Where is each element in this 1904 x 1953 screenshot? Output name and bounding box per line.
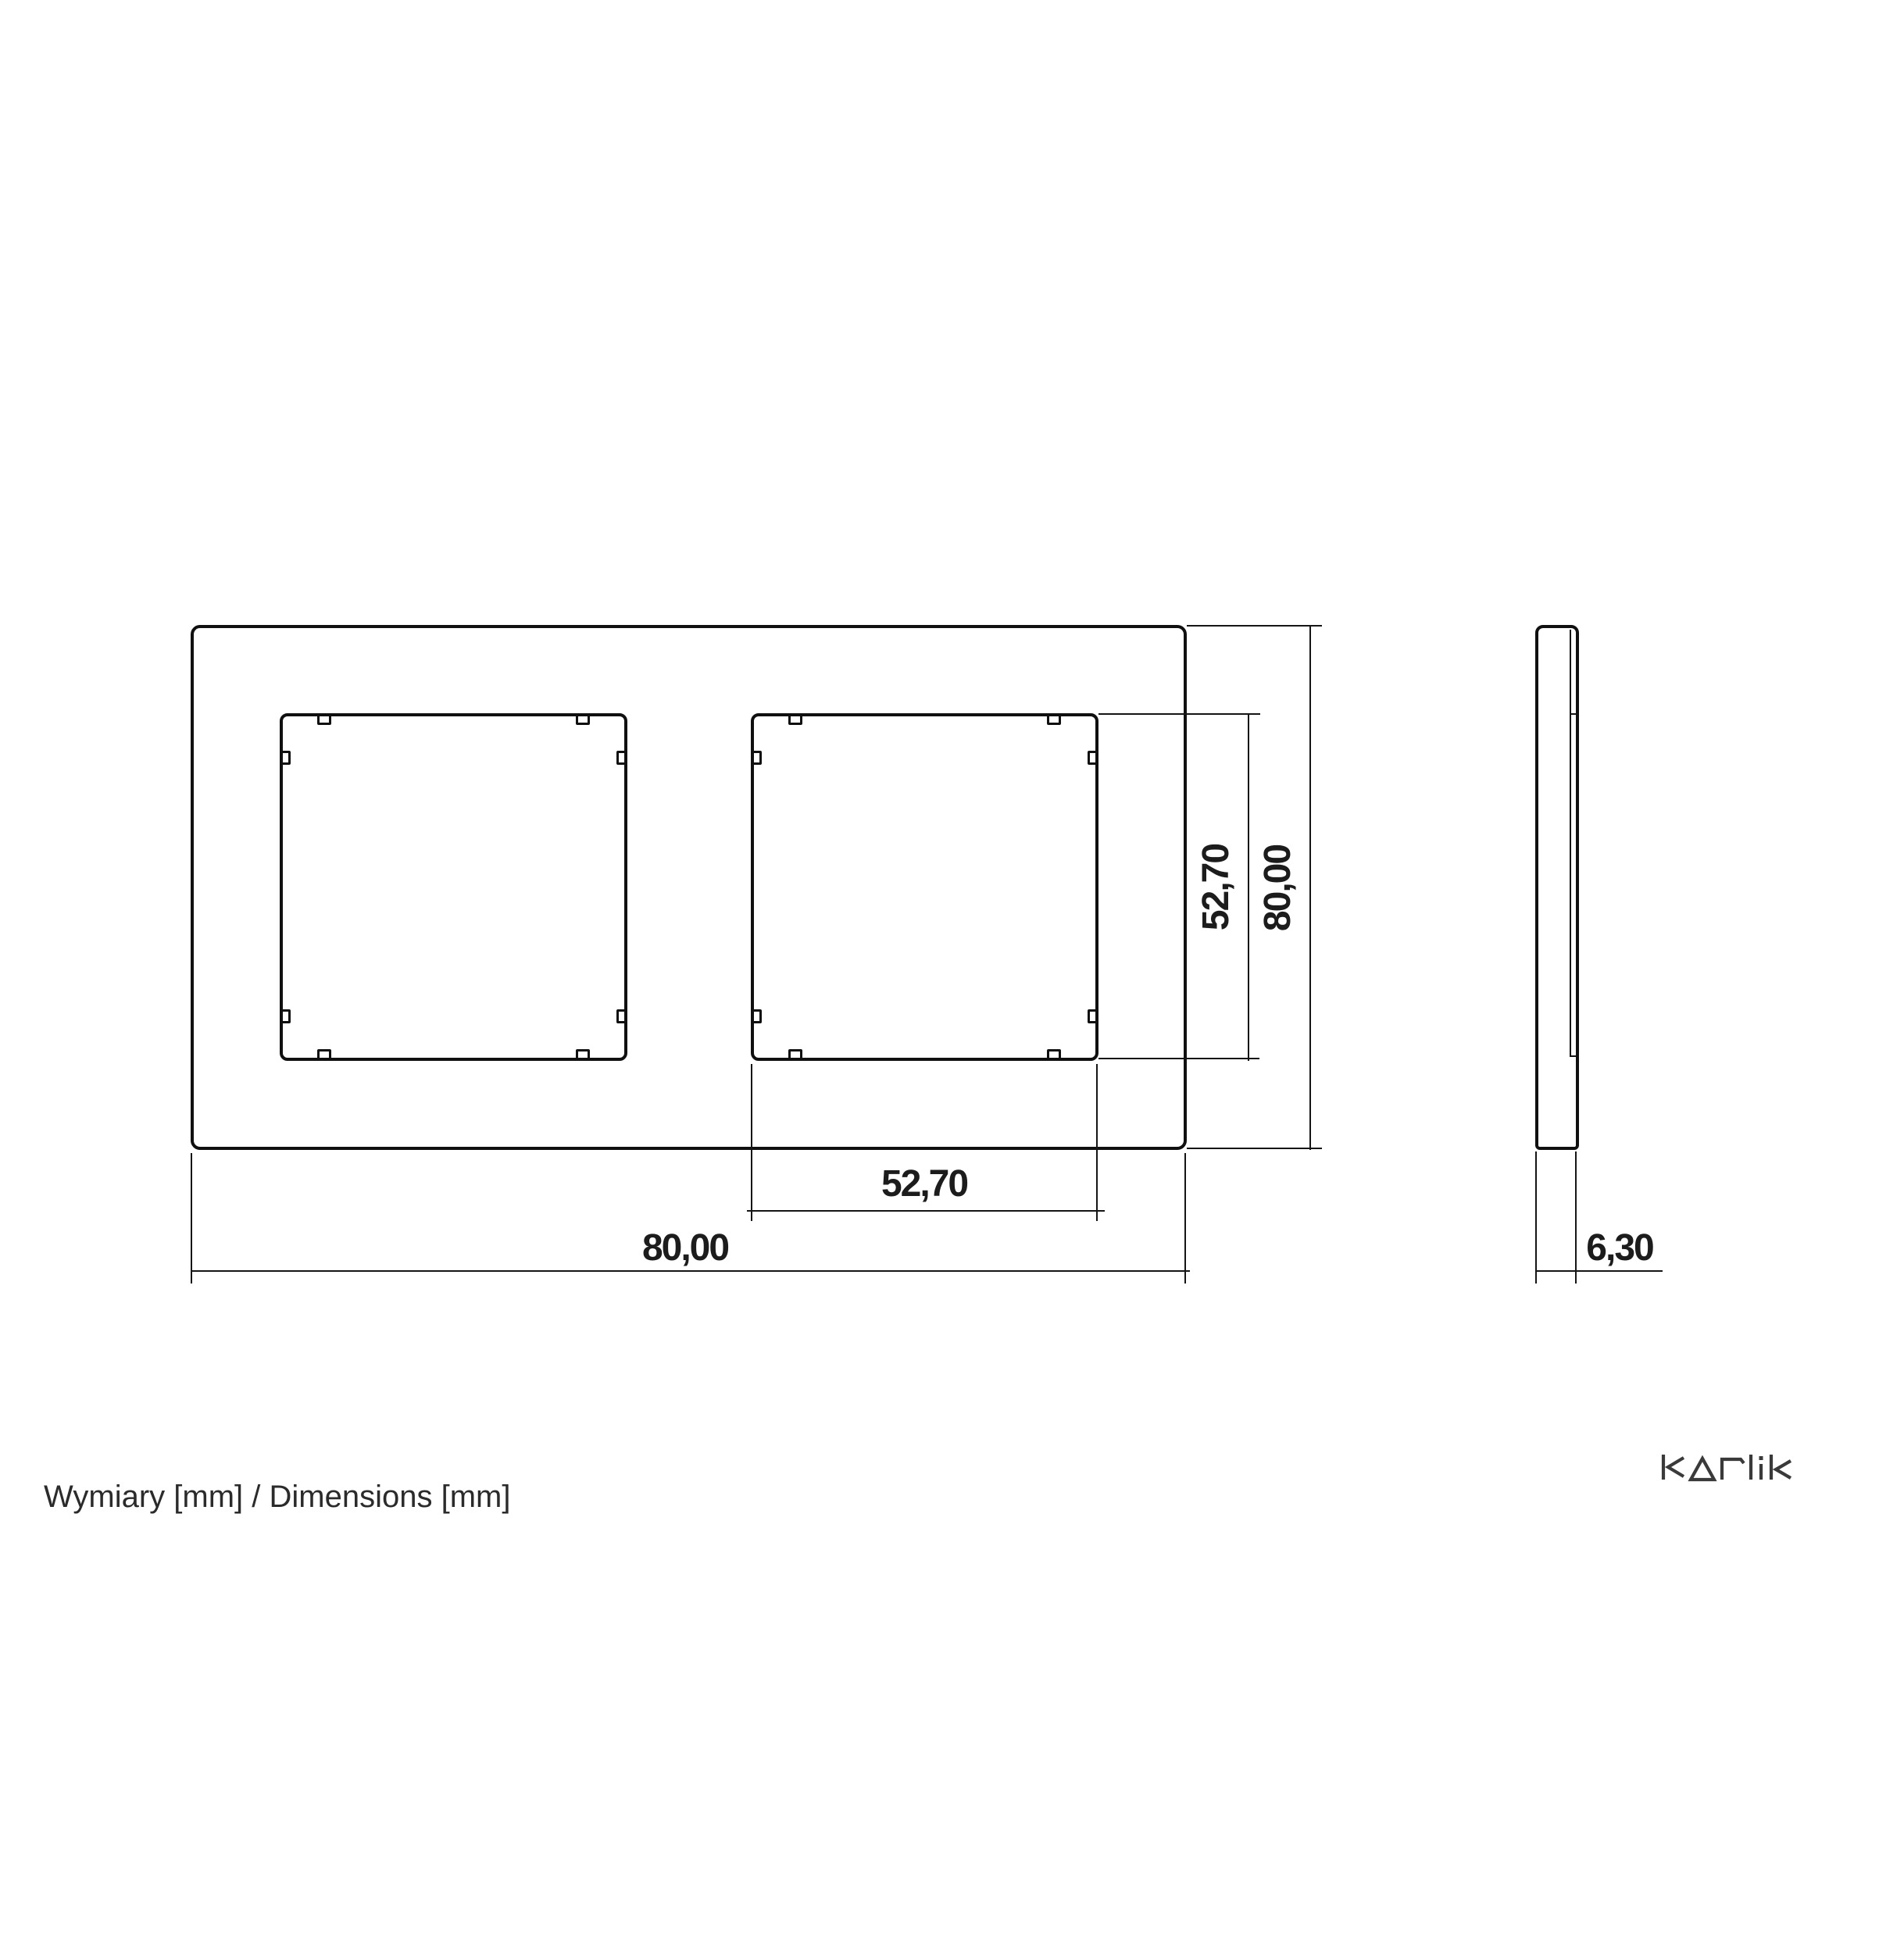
clip-tab xyxy=(1047,714,1061,725)
side-view-outline xyxy=(1535,625,1579,1150)
dim-line-frame-width xyxy=(191,1270,1190,1272)
front-view-opening-1 xyxy=(280,713,627,1061)
side-view-step-line xyxy=(1570,1055,1577,1057)
karlik-logo xyxy=(1659,1448,1803,1486)
dim-label-frame-width: 80,00 xyxy=(607,1230,763,1267)
units-note: Wymiary [mm] / Dimensions [mm] xyxy=(44,1480,510,1515)
front-view-opening-2 xyxy=(751,713,1098,1061)
dim-label-thickness: 6,30 xyxy=(1541,1230,1698,1267)
extension-line xyxy=(1535,1151,1537,1284)
clip-tab xyxy=(752,1009,762,1023)
clip-tab xyxy=(1047,1049,1061,1060)
clip-tab xyxy=(317,1049,331,1060)
extension-line xyxy=(1098,1058,1259,1059)
clip-tab xyxy=(280,1009,291,1023)
clip-tab xyxy=(616,1009,627,1023)
extension-line xyxy=(191,1153,192,1284)
clip-tab xyxy=(1088,1009,1098,1023)
side-view-step-line xyxy=(1570,713,1577,715)
clip-tab xyxy=(616,751,627,765)
extension-line xyxy=(751,1064,752,1221)
clip-tab xyxy=(1088,751,1098,765)
clip-tab xyxy=(788,1049,802,1060)
clip-tab xyxy=(280,751,291,765)
dim-line-opening-height xyxy=(1248,713,1249,1061)
technical-drawing-canvas: 52,70 80,00 6,30 52,70 80,00 Wymiary [mm… xyxy=(0,0,1904,1953)
extension-line xyxy=(1098,713,1260,715)
clip-tab xyxy=(576,1049,590,1060)
clip-tab xyxy=(788,714,802,725)
extension-line xyxy=(1096,1064,1098,1221)
dim-line-frame-height xyxy=(1309,625,1311,1150)
dim-label-opening-height: 52,70 xyxy=(1198,844,1235,930)
clip-tab xyxy=(752,751,762,765)
extension-line xyxy=(1187,625,1322,627)
extension-line xyxy=(1187,1148,1322,1149)
dim-line-opening-width xyxy=(747,1210,1105,1212)
side-view-inner-face-line xyxy=(1570,630,1571,1056)
dim-line-thickness xyxy=(1535,1270,1663,1272)
extension-line xyxy=(1184,1153,1186,1284)
clip-tab xyxy=(576,714,590,725)
dim-label-frame-height: 80,00 xyxy=(1259,845,1297,931)
dim-label-opening-width: 52,70 xyxy=(846,1166,1002,1203)
clip-tab xyxy=(317,714,331,725)
